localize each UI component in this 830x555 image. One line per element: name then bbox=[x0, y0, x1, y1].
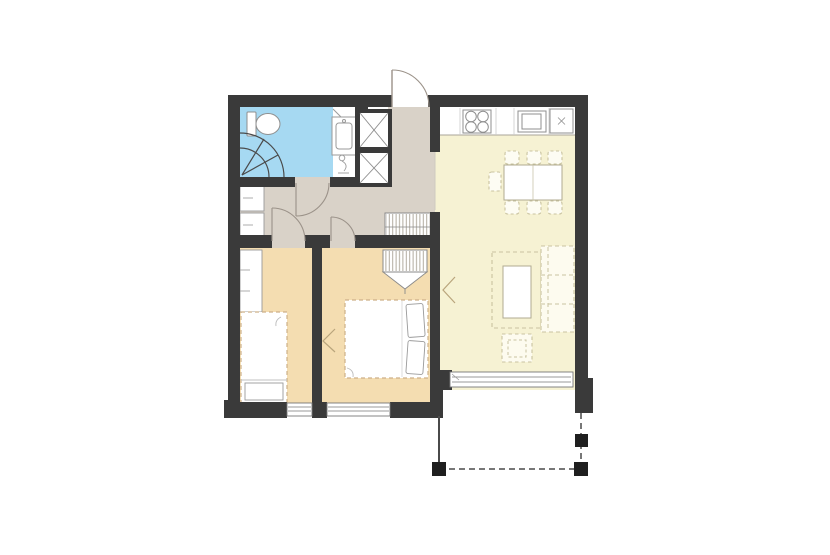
wall-top-right bbox=[428, 95, 588, 107]
bedroom2-window bbox=[327, 403, 390, 416]
pillow bbox=[406, 340, 425, 374]
balcony-post-right bbox=[574, 462, 588, 476]
wall-bathroom-bottom-left bbox=[240, 177, 295, 187]
wall-bottom-pillar bbox=[312, 402, 327, 418]
entrance-door bbox=[392, 70, 429, 107]
balcony bbox=[432, 413, 588, 476]
kitchen-counter bbox=[440, 107, 575, 135]
balcony-door-window bbox=[450, 372, 573, 387]
wall-left bbox=[228, 95, 240, 418]
floor-plan-svg bbox=[0, 0, 830, 555]
bedroom1-window bbox=[287, 403, 312, 416]
entrance-vestibule-floor bbox=[388, 107, 435, 187]
wall-right-bottom-block bbox=[575, 378, 593, 413]
wall-between-bedrooms bbox=[312, 248, 322, 402]
wall-living-corner bbox=[430, 388, 443, 418]
wall-living-bottom-stub bbox=[430, 370, 452, 390]
balcony-post-left bbox=[432, 462, 446, 476]
wall-hall-bedroom-2 bbox=[305, 235, 330, 248]
wall-hall-bedroom-3 bbox=[355, 235, 440, 248]
wall-right bbox=[575, 95, 588, 413]
duct-shafts bbox=[358, 111, 390, 185]
desk bbox=[240, 250, 262, 312]
double-bed bbox=[345, 300, 428, 378]
balcony-post-mid bbox=[575, 434, 588, 447]
wall-bottom-1 bbox=[228, 402, 287, 418]
wall-kitchen-upper bbox=[430, 107, 440, 152]
floor-plan-image bbox=[0, 0, 830, 555]
coffee-table bbox=[503, 266, 531, 318]
sofa bbox=[541, 246, 574, 332]
pillow bbox=[245, 383, 283, 400]
side-table bbox=[502, 334, 532, 362]
wall-hall-bedroom-1 bbox=[228, 235, 272, 248]
pillow bbox=[406, 303, 425, 337]
toilet-icon bbox=[247, 112, 280, 136]
wall-top-left bbox=[228, 95, 392, 107]
single-bed bbox=[241, 312, 287, 403]
